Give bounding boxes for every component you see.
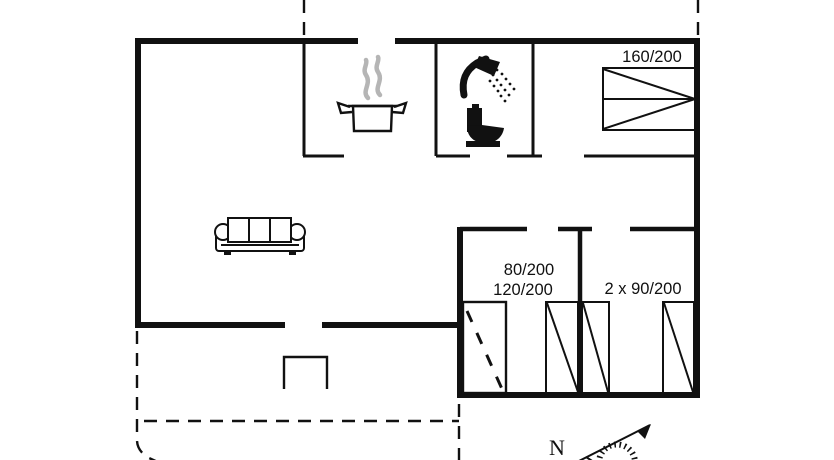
double-bed-icon: [603, 68, 695, 130]
steam-icon: [365, 60, 368, 98]
compass-tick-ring: [599, 444, 635, 460]
toilet-bowl: [467, 125, 504, 143]
toilet-base: [466, 141, 500, 147]
right-bedroom-size-label: 2 x 90/200: [604, 280, 681, 298]
pot-body: [353, 106, 392, 131]
shower-spray: [489, 69, 516, 103]
left-bedroom-size-label-1: 80/200: [504, 261, 554, 279]
compass-needle-head: [637, 424, 651, 439]
north-label: N: [549, 435, 565, 460]
steam-icon: [377, 57, 380, 95]
shower-icon: [463, 56, 515, 102]
stove-pot-icon: [338, 57, 406, 131]
single-beds: [546, 302, 694, 393]
single-bed-icon: [663, 302, 694, 393]
double-bed-size-label: 160/200: [622, 48, 682, 66]
pot-handle-right: [392, 103, 406, 113]
sofa-cushion: [270, 218, 291, 242]
porch-step-icon: [284, 357, 327, 389]
single-bed-icon: [582, 302, 609, 393]
terrace-dashed-left: [137, 331, 160, 460]
left-bedroom-size-label-2: 120/200: [493, 281, 553, 299]
sofa-cushion: [228, 218, 249, 242]
floor-plan-drawing: 160/200 80/200 120/200 2 x 90/200 N: [0, 0, 834, 460]
pot-handle-left: [338, 103, 352, 113]
shower-head: [474, 56, 500, 76]
compass-rose-icon: N: [549, 424, 651, 460]
floor-plan: 160/200 80/200 120/200 2 x 90/200 N: [0, 0, 834, 460]
sofa-icon: [215, 218, 305, 255]
wardrobe-icon: [463, 302, 506, 393]
wardrobe-diagonal: [467, 311, 502, 389]
single-bed-icon: [546, 302, 578, 393]
sofa-foot: [289, 251, 296, 255]
sofa-cushion: [249, 218, 270, 242]
sofa-foot: [224, 251, 231, 255]
toilet-icon: [466, 104, 504, 147]
